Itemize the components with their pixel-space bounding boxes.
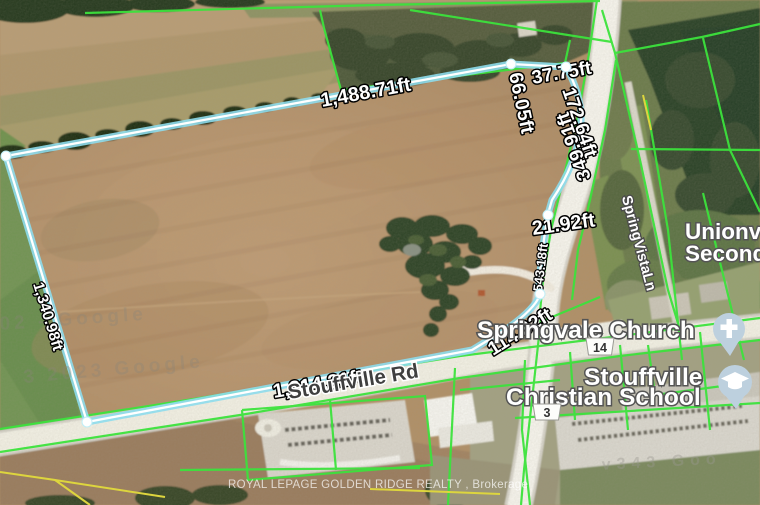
- svg-text:Second: Second: [685, 241, 760, 266]
- svg-text:ROYAL LEPAGE GOLDEN RIDGE REAL: ROYAL LEPAGE GOLDEN RIDGE REALTY , Broke…: [228, 479, 528, 491]
- svg-text:3: 3: [544, 406, 551, 420]
- svg-text:14: 14: [593, 341, 607, 355]
